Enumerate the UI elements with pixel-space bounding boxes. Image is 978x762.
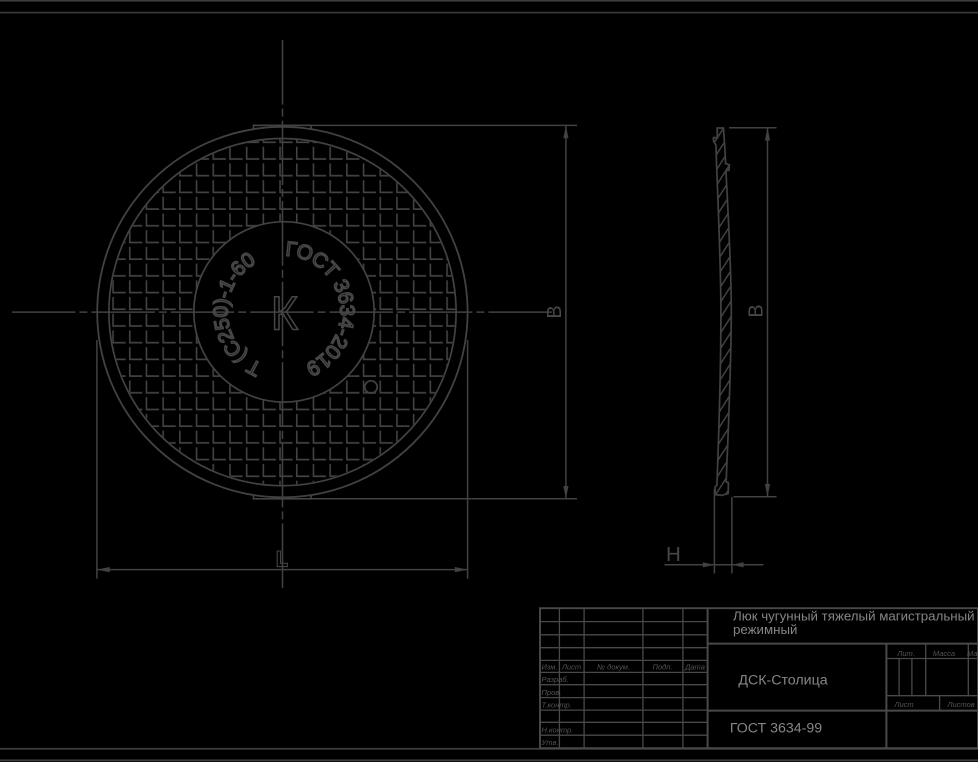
svg-text:Люк чугунный тяжелый магистрал: Люк чугунный тяжелый магистральный: [733, 608, 975, 623]
svg-text:Т (С250)-1-60: Т (С250)-1-60: [210, 248, 265, 380]
svg-text:Разраб.: Разраб.: [542, 675, 569, 684]
svg-text:Т.контр.: Т.контр.: [542, 700, 572, 709]
svg-text:B: B: [544, 305, 566, 318]
svg-text:Лит.: Лит.: [896, 649, 915, 658]
svg-text:ДСК-Столица: ДСК-Столица: [738, 672, 827, 688]
svg-text:H: H: [666, 543, 681, 566]
svg-text:К: К: [271, 286, 299, 339]
svg-text:B: B: [746, 304, 768, 317]
svg-text:Изм.: Изм.: [542, 663, 558, 672]
svg-text:Дата: Дата: [684, 663, 705, 672]
svg-text:Масса: Масса: [933, 649, 955, 658]
svg-text:Пров.: Пров.: [542, 688, 562, 697]
svg-text:Лист: Лист: [561, 663, 581, 672]
svg-text:режимный: режимный: [733, 622, 797, 637]
svg-text:Лист: Лист: [893, 700, 913, 709]
svg-text:Масштаб: Масштаб: [967, 649, 978, 658]
svg-text:Утв.: Утв.: [541, 738, 559, 747]
svg-text:№ докум.: № докум.: [597, 663, 630, 672]
svg-text:Н.контр.: Н.контр.: [542, 725, 574, 734]
svg-text:Подп.: Подп.: [653, 663, 673, 672]
svg-text:Листов: Листов: [946, 700, 974, 709]
svg-text:ГОСТ 3634-99: ГОСТ 3634-99: [730, 720, 822, 736]
